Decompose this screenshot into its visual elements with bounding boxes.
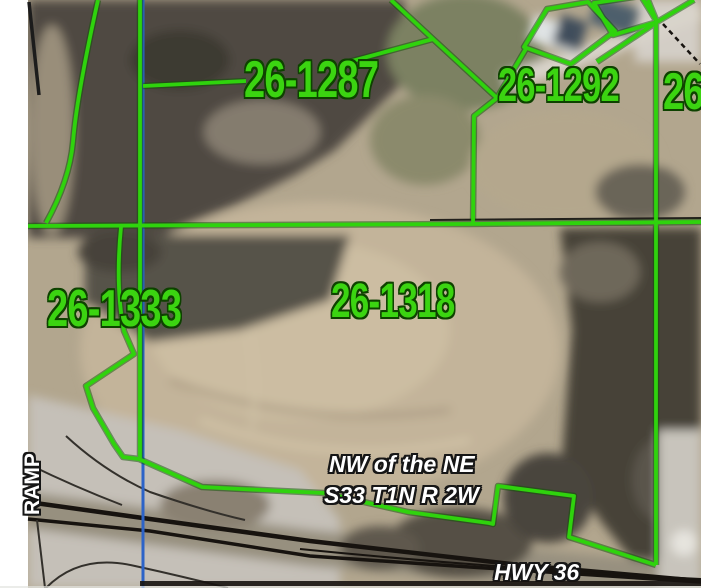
parcel-label-26-1318: 26-1318 xyxy=(331,278,454,326)
label-leader-line-1287 xyxy=(143,81,246,86)
ramp-road-label: RAMP xyxy=(22,441,43,515)
parcel-label-right-partial: 26 xyxy=(663,66,701,118)
section-note-line1: NW of the NE xyxy=(329,453,475,476)
parcel-label-26-1333: 26-1333 xyxy=(47,283,181,335)
photo-edge-line xyxy=(29,2,39,95)
parcel-map-viewport[interactable]: 26-1287 26-1292 26 26-1333 26-1318 NW of… xyxy=(0,0,701,588)
parcel-label-26-1292: 26-1292 xyxy=(498,61,619,108)
road-edge-dashed-line xyxy=(663,24,700,64)
parcel-label-26-1287: 26-1287 xyxy=(244,54,378,106)
section-note-line2: S33 T1N R 2W xyxy=(324,484,479,507)
